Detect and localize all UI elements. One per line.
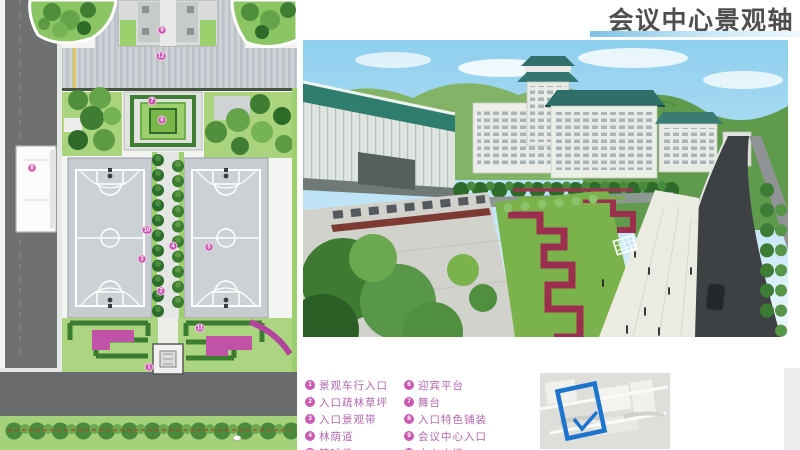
legend-label: 景观车行入口 [319,378,388,393]
south-street-trees [0,416,297,450]
left-tree-grove [62,87,122,156]
basketball-court-right [184,158,268,318]
perspective-render [303,40,788,337]
legend-item-8: 8 入口特色铺装 [404,414,487,424]
presentation-board: 912768104532111 会议中心景观轴 [0,0,800,450]
basketball-court-left [68,158,152,318]
legend-item-3: 3 入口景观带 [305,414,388,424]
legend-label: 篮球场 [319,446,354,450]
legend-label: 舞台 [418,395,441,410]
legend-item-7: 7 舞台 [404,397,487,407]
page-corner-shade [784,368,800,450]
legend-number-badge: 8 [404,414,414,424]
legend-item-2: 2 入口疏林草坪 [305,397,388,407]
main-hall-block [545,90,665,178]
legend-label: 会议中心入口 [418,429,487,444]
legend-label: 中心广场 [418,446,464,450]
keyplan-thumbnail [540,373,670,449]
tree-allee [152,152,184,322]
legend-number-badge: 9 [404,431,414,441]
legend-number-badge: 4 [305,431,315,441]
render-illustration [303,40,788,337]
legend-column-2: 6 迎宾平台 7 舞台 8 入口特色铺装 9 会议中心入口 10 中心广场 [404,380,487,450]
right-tree-grove [204,92,293,158]
west-building [16,146,56,232]
legend-column-1: 1 景观车行入口 2 入口疏林草坪 3 入口景观带 4 林荫道 5 篮球场 [305,380,388,450]
legend-number-badge: 1 [305,380,315,390]
legend-label: 林荫道 [319,429,354,444]
legend-number-badge: 6 [404,380,414,390]
legend-item-4: 4 林荫道 [305,431,388,441]
formal-garden-square [124,92,202,150]
legend-item-9: 9 会议中心入口 [404,431,487,441]
south-garden [62,318,292,374]
legend-label: 入口特色铺装 [418,412,487,427]
masterplan-drawing [0,0,297,450]
legend-number-badge: 2 [305,397,315,407]
legend-label: 入口景观带 [319,412,377,427]
title-accent-bar [590,31,800,37]
legend-number-badge: 7 [404,397,414,407]
legend-item-1: 1 景观车行入口 [305,380,388,390]
legend-label: 迎宾平台 [418,378,464,393]
site-masterplan: 912768104532111 [0,0,297,450]
legend-label: 入口疏林草坪 [319,395,388,410]
legend-item-6: 6 迎宾平台 [404,380,487,390]
legend-number-badge: 3 [305,414,315,424]
